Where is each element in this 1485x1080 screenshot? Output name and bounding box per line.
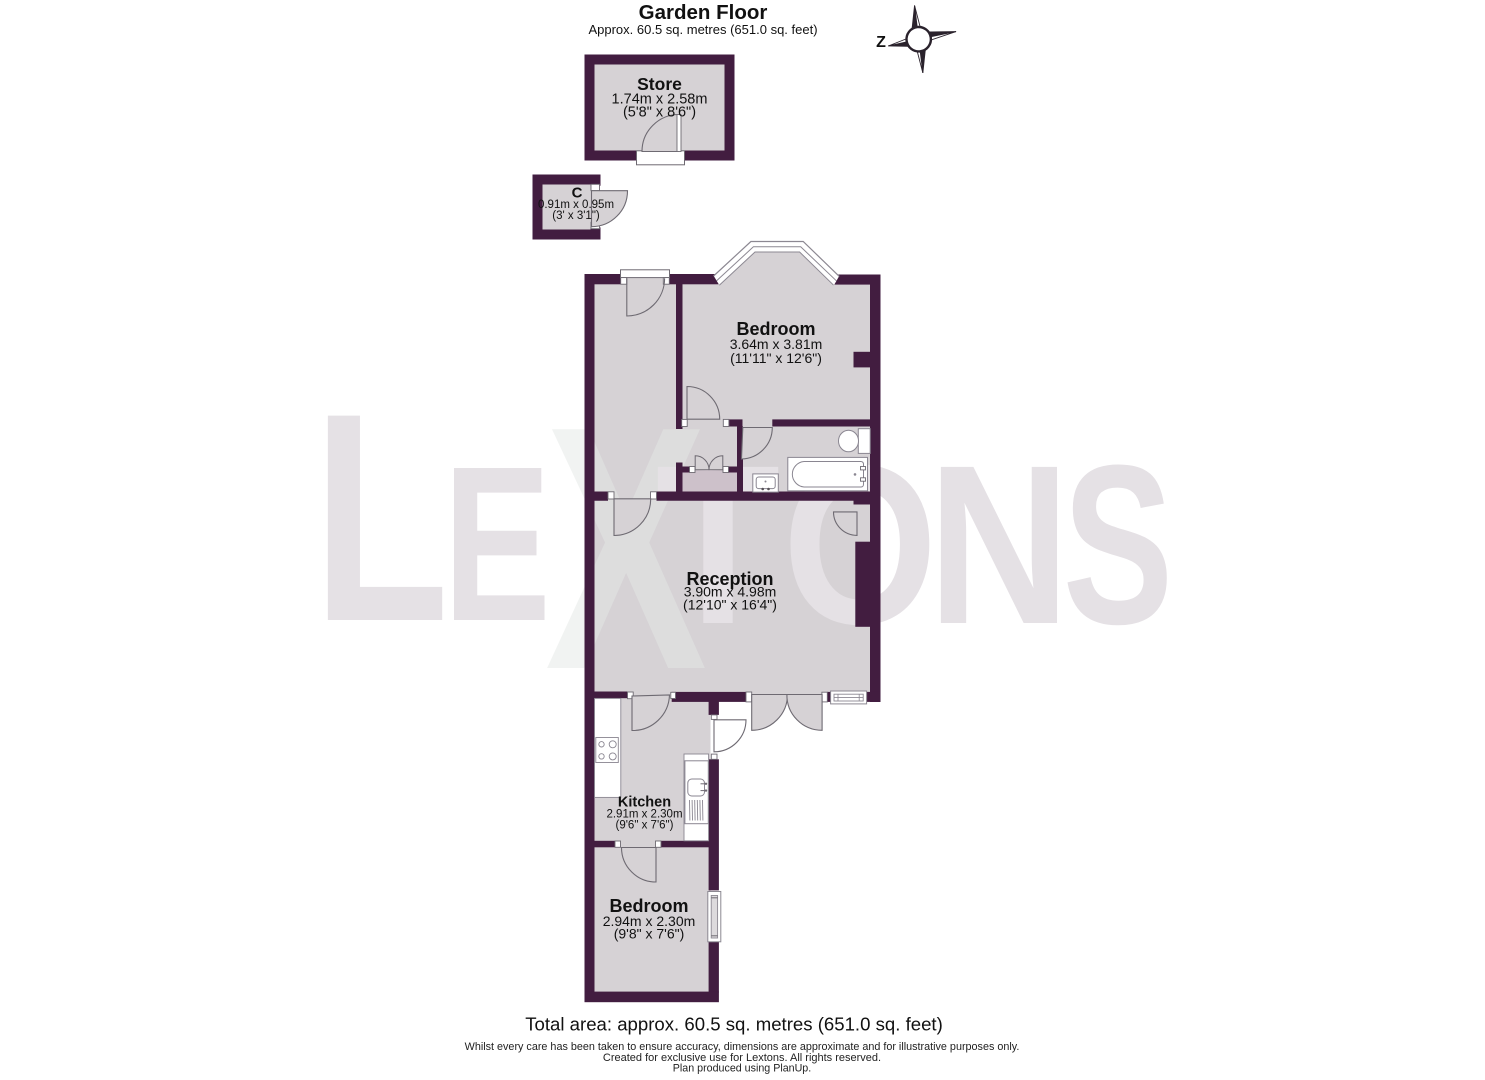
svg-text:(3' x 3'1"): (3' x 3'1") [552,210,600,222]
svg-text:N: N [928,418,1071,672]
svg-text:Z: Z [876,34,886,51]
svg-text:(9'8" x 7'6"): (9'8" x 7'6") [614,926,685,942]
svg-text:(9'6" x 7'6"): (9'6" x 7'6") [616,820,674,832]
svg-text:Plan produced using PlanUp.: Plan produced using PlanUp. [673,1063,811,1075]
svg-text:T: T [656,418,781,671]
svg-text:(5'8" x 8'6"): (5'8" x 8'6") [623,105,696,121]
svg-text:L: L [313,351,449,684]
svg-text:(12'10" x 16'4"): (12'10" x 16'4") [683,597,777,613]
svg-text:Total area: approx. 60.5 sq. m: Total area: approx. 60.5 sq. metres (651… [525,1014,943,1035]
svg-text:(11'11" x 12'6"): (11'11" x 12'6") [730,350,822,366]
svg-text:Approx. 60.5 sq. metres (651.0: Approx. 60.5 sq. metres (651.0 sq. feet) [588,22,817,37]
svg-text:E: E [443,420,551,667]
svg-text:S: S [1063,419,1174,673]
svg-text:Garden Floor: Garden Floor [639,1,768,24]
